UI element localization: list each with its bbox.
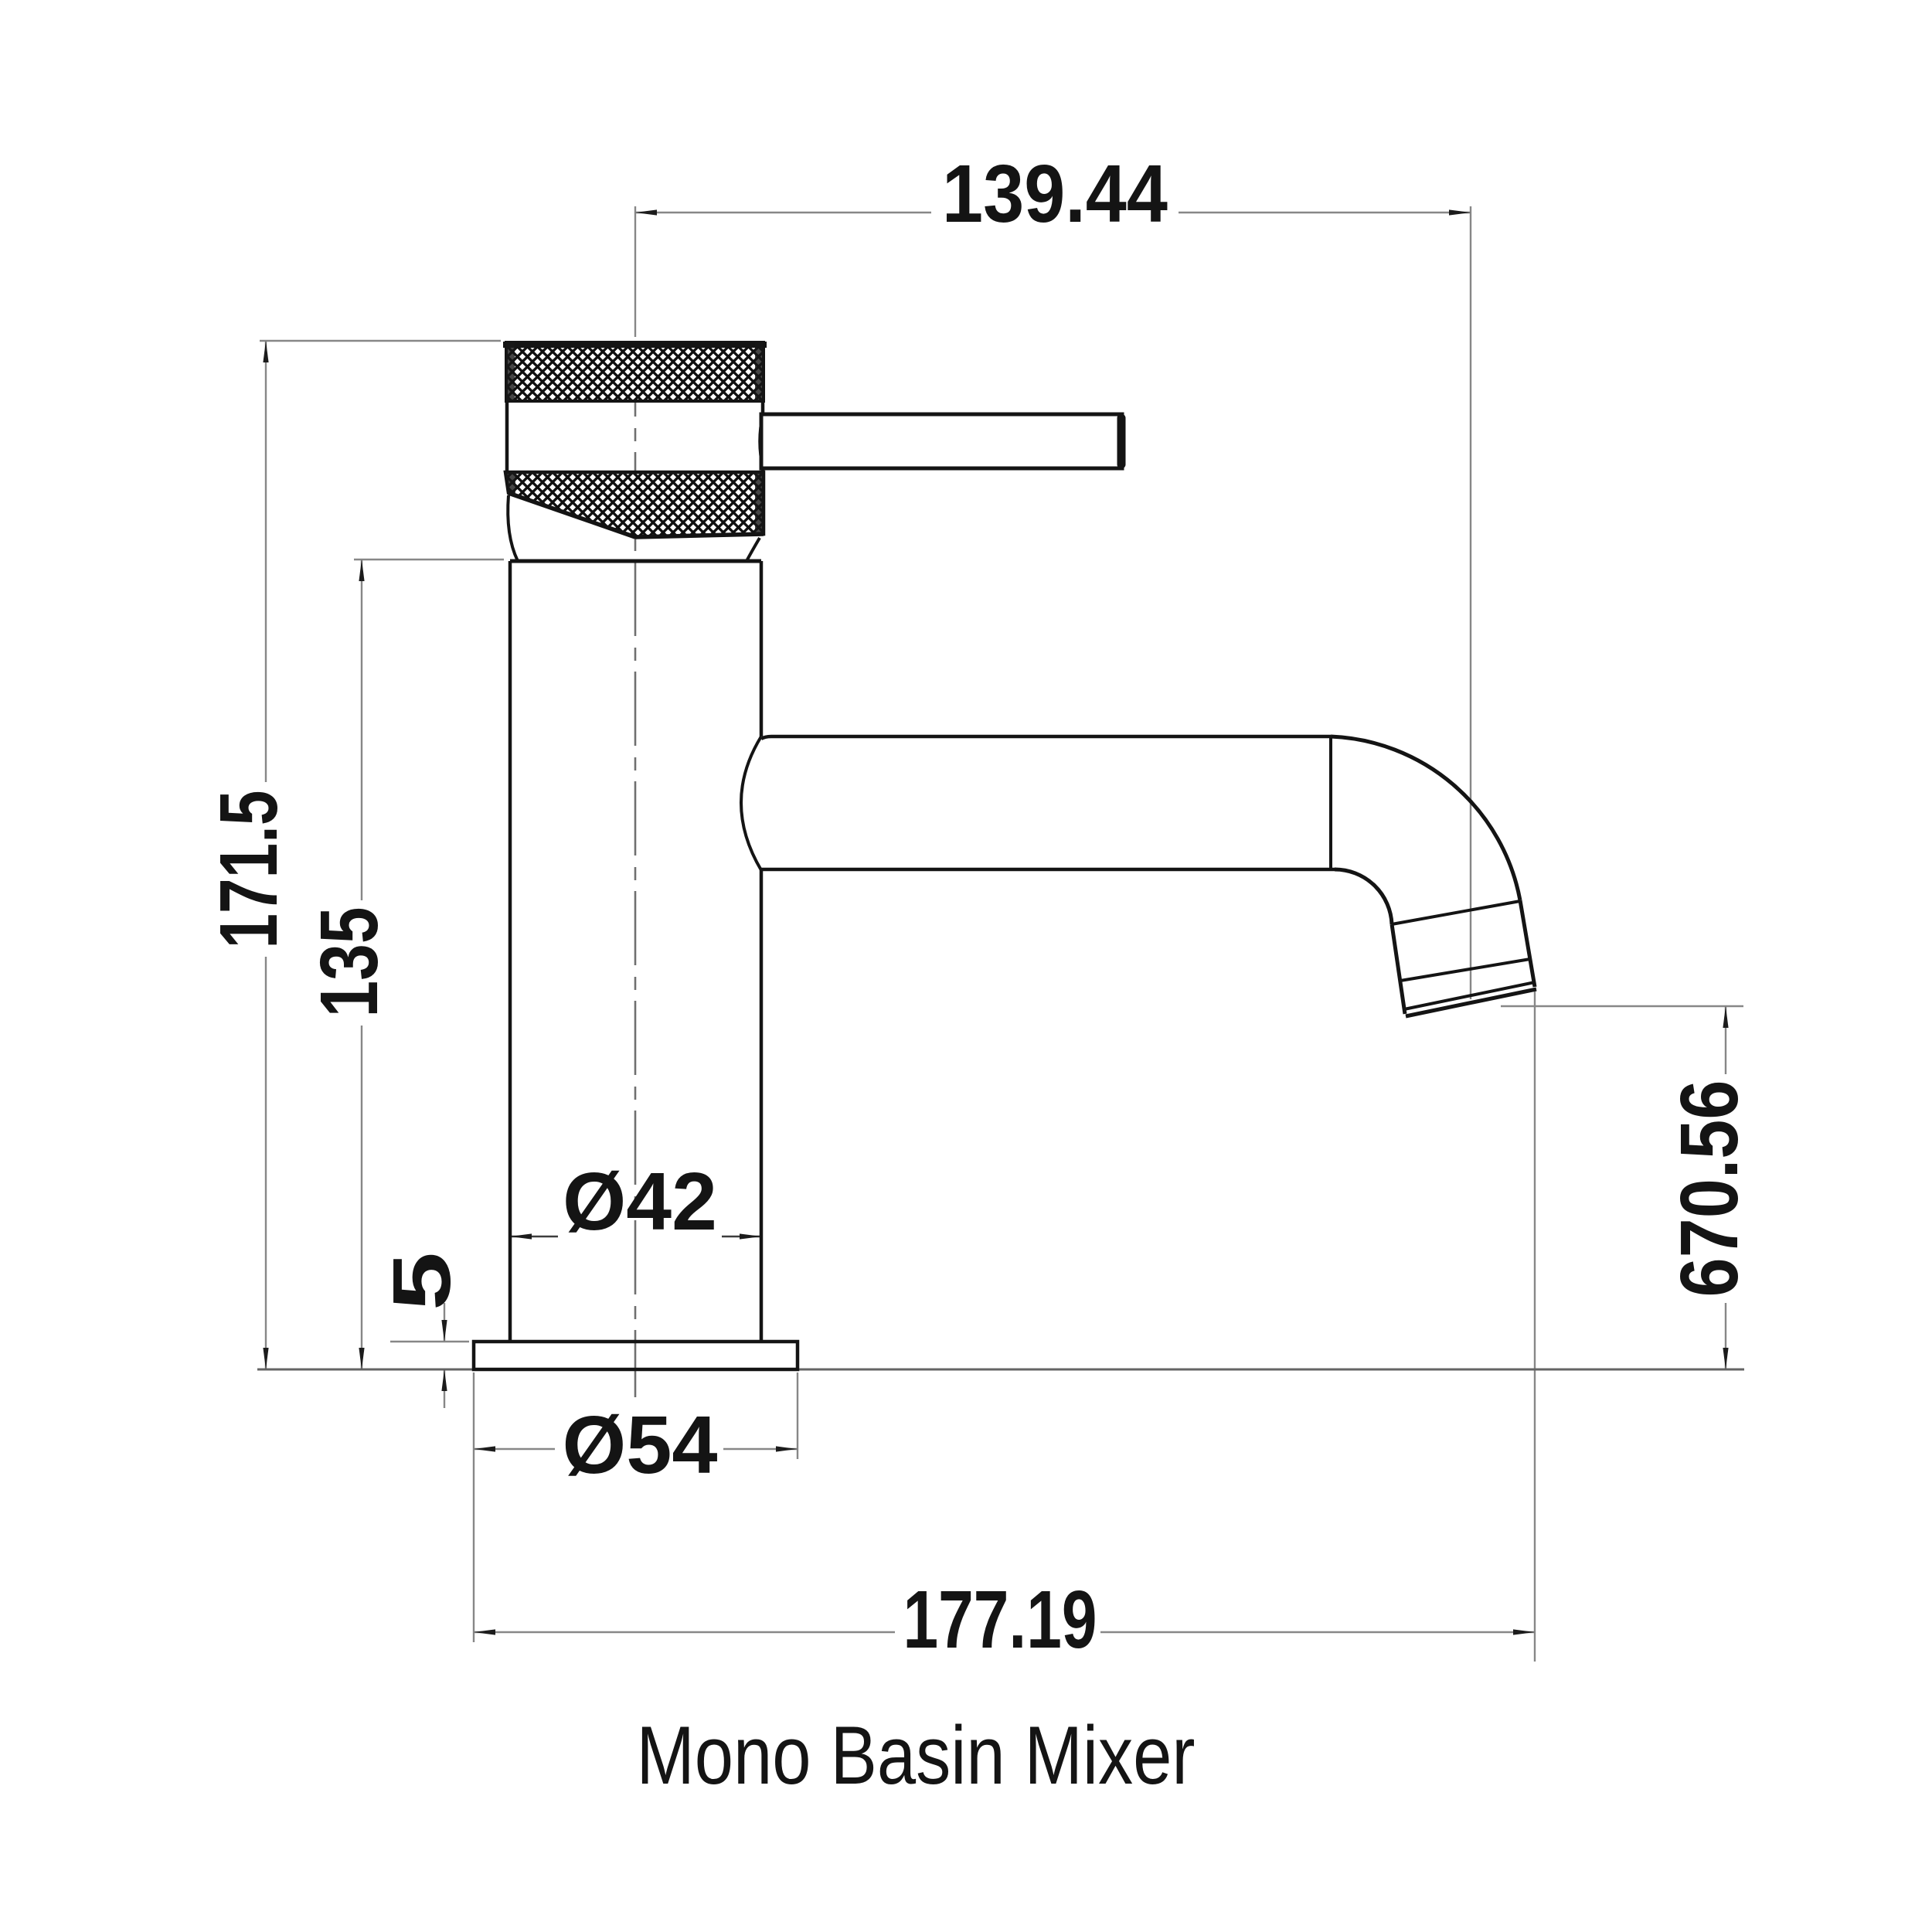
svg-text:177.19: 177.19 <box>903 1574 1097 1665</box>
svg-text:171.5: 171.5 <box>203 791 294 949</box>
svg-text:Mono Basin Mixer: Mono Basin Mixer <box>637 1709 1196 1801</box>
svg-text:670.56: 670.56 <box>1664 1080 1755 1298</box>
svg-text:135: 135 <box>304 907 395 1018</box>
svg-text:Ø42: Ø42 <box>563 1156 717 1247</box>
svg-text:139.44: 139.44 <box>942 148 1168 240</box>
svg-text:5: 5 <box>376 1252 468 1311</box>
svg-text:Ø54: Ø54 <box>563 1400 718 1491</box>
